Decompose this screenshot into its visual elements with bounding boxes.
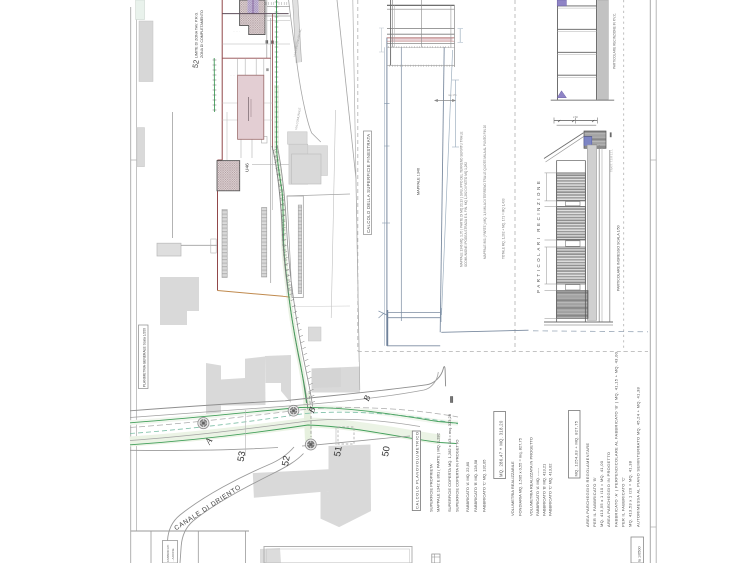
svg-text:ZONA DI COMPLETAMENTO: ZONA DI COMPLETAMENTO (200, 10, 204, 58)
svg-text:PER IL FABBRICATO 'B': PER IL FABBRICATO 'B' (592, 477, 597, 527)
svg-text:PARTICOLARE RECINZIONE IN P.V.: PARTICOLARE RECINZIONE IN P.V.C. (613, 13, 617, 69)
svg-text:52: 52 (279, 455, 292, 467)
svg-text:52: 52 (191, 59, 201, 69)
svg-text:MAPPALE 1346: MAPPALE 1346 (417, 168, 421, 195)
svg-text:AREA PARCHEGGIO IN PROGETTO: AREA PARCHEGGIO IN PROGETTO (606, 452, 611, 527)
svg-text:MQ. 413,55 x 1 /10 = MQ. 41,00: MQ. 413,55 x 1 /10 = MQ. 41,00 (599, 460, 604, 527)
svg-text:FABBRICATO 'B' MQ. 128,58: FABBRICATO 'B' MQ. 128,58 (473, 459, 478, 512)
svg-text:LIMITE DI ZONA TAV. P.R.G.: LIMITE DI ZONA TAV. P.R.G. (195, 12, 199, 58)
svg-text:FABBRICATO 'C' MQ. 413,02: FABBRICATO 'C' MQ. 413,02 (548, 463, 553, 516)
svg-text:PER IL FABBRICATO 'C': PER IL FABBRICATO 'C' (621, 477, 626, 527)
svg-text:SCOMUNIONE IPOGEA STRADA E IL: SCOMUNIONE IPOGEA STRADA E IL FIN. MQ 1,… (464, 162, 468, 267)
svg-text:FABBRICATO 'B' MQ. 413,21: FABBRICATO 'B' MQ. 413,21 (542, 463, 547, 516)
svg-text:PARTICOLARE INGRESSO SCALA: PARTICOLARE INGRESSO SCALA 1/50 (617, 225, 621, 291)
svg-text:MAPPALE 1342 E 861 ( PARTE ) M: MAPPALE 1342 E 861 ( PARTE ) MQ. 1,282 (436, 432, 441, 512)
svg-text:· · · ·: · · · · (230, 75, 235, 78)
svg-text:AUTORIMESSA AL PIANO SEMINTERR: AUTORIMESSA AL PIANO SEMINTERRATO MQ. 45… (636, 386, 641, 527)
svg-text:FONDIARIA MQ. 1,505 x 0,55 =: FONDIARIA MQ. 1,505 x 0,55 = mq. 827,75 (518, 437, 523, 516)
svg-text:SUPERFICIE COPERTA IN PROGETTO: SUPERFICIE COPERTA IN PROGETTO (455, 440, 460, 512)
svg-text:50: 50 (379, 445, 392, 457)
svg-text:SUPERFICIE COPERTA MQ. 1,282 x: SUPERFICIE COPERTA MQ. 1,282 x 1/3 = mq.… (447, 413, 452, 512)
svg-text:FABBRICATO 'A' ( PERPENDICOLAR: FABBRICATO 'A' ( PERPENDICOLARE AL FABBR… (614, 351, 619, 527)
svg-text:PLANIMETRIA GENERALE Scala: PLANIMETRIA GENERALE Scala 1/200 (143, 328, 147, 387)
svg-text:2.50: 2.50 (573, 116, 578, 119)
svg-text:TOTALE MQ. 1,262 + MQ. 171 =: TOTALE MQ. 1,262 + MQ. 171 = MQ 1,433 (502, 198, 506, 259)
svg-text:VOLUMETRIA REALIZZATA IN PROGE: VOLUMETRIA REALIZZATA IN PROGETTO (529, 437, 534, 516)
svg-text:la 1/0500: la 1/0500 (638, 546, 642, 562)
svg-text:MQ. 1254,03 + MQ. 827,75: MQ. 1254,03 + MQ. 827,75 (574, 420, 579, 476)
svg-text:MAPPALE 861 ( PARTE ) MQ. 1,6: MAPPALE 861 ( PARTE ) MQ. 1,6 MILA DI TE… (483, 125, 487, 259)
svg-text:SUPERFICIE PROPRIETA`: SUPERFICIE PROPRIETA` (428, 462, 433, 512)
svg-text:MAPPALE 1346 MQ. 1,70 ( PARTE: MAPPALE 1346 MQ. 1,70 ( PARTE DI MQ 20,1… (460, 132, 464, 268)
svg-text:TRATT. T.S R 1.1 L: TRATT. T.S R 1.1 L (610, 149, 614, 172)
svg-text:...AZIONE: ...AZIONE (171, 548, 175, 562)
svg-text:AREA PARCHEGGIO REGOLAMENTARE: AREA PARCHEGGIO REGOLAMENTARE (585, 443, 590, 527)
svg-text:mq 171: mq 171 (448, 93, 457, 97)
svg-text:CALCOLO DELLA SUPERFICIE FINES: CALCOLO DELLA SUPERFICIE FINESTRATA (366, 134, 371, 233)
svg-text:FABBRICATI: FABBRICATI (166, 545, 170, 562)
svg-text:53: 53 (235, 450, 248, 462)
svg-text:FABBRICATO 'A' MQ. ------: FABBRICATO 'A' MQ. ------ (535, 467, 540, 516)
svg-text:MQ. 413,53 x 1 /20 = MQ. 41,38: MQ. 413,53 x 1 /20 = MQ. 41,38 (628, 460, 633, 527)
svg-text:51: 51 (331, 445, 344, 457)
svg-text:VOLUMETRIA REALIZZABILE: VOLUMETRIA REALIZZABILE (510, 461, 515, 516)
svg-text:U46: U46 (245, 163, 251, 172)
svg-text:FABBRICATO 'C' MQ. 132,05: FABBRICATO 'C' MQ. 132,05 (482, 459, 487, 512)
svg-text:· · · · ·: · · · · · (233, 31, 240, 34)
svg-text:PARTICOLARI RECINZIONE: PARTICOLARI RECINZIONE (536, 179, 541, 293)
svg-text:CALCOLO PLANOVOLUMETRICO: CALCOLO PLANOVOLUMETRICO (415, 431, 420, 509)
svg-text:FABBRICATO 'A' MQ. 22,80: FABBRICATO 'A' MQ. 22,80 (465, 461, 470, 512)
svg-text:MQ. 286,47 + MQ. 318,20: MQ. 286,47 + MQ. 318,20 (499, 420, 504, 477)
